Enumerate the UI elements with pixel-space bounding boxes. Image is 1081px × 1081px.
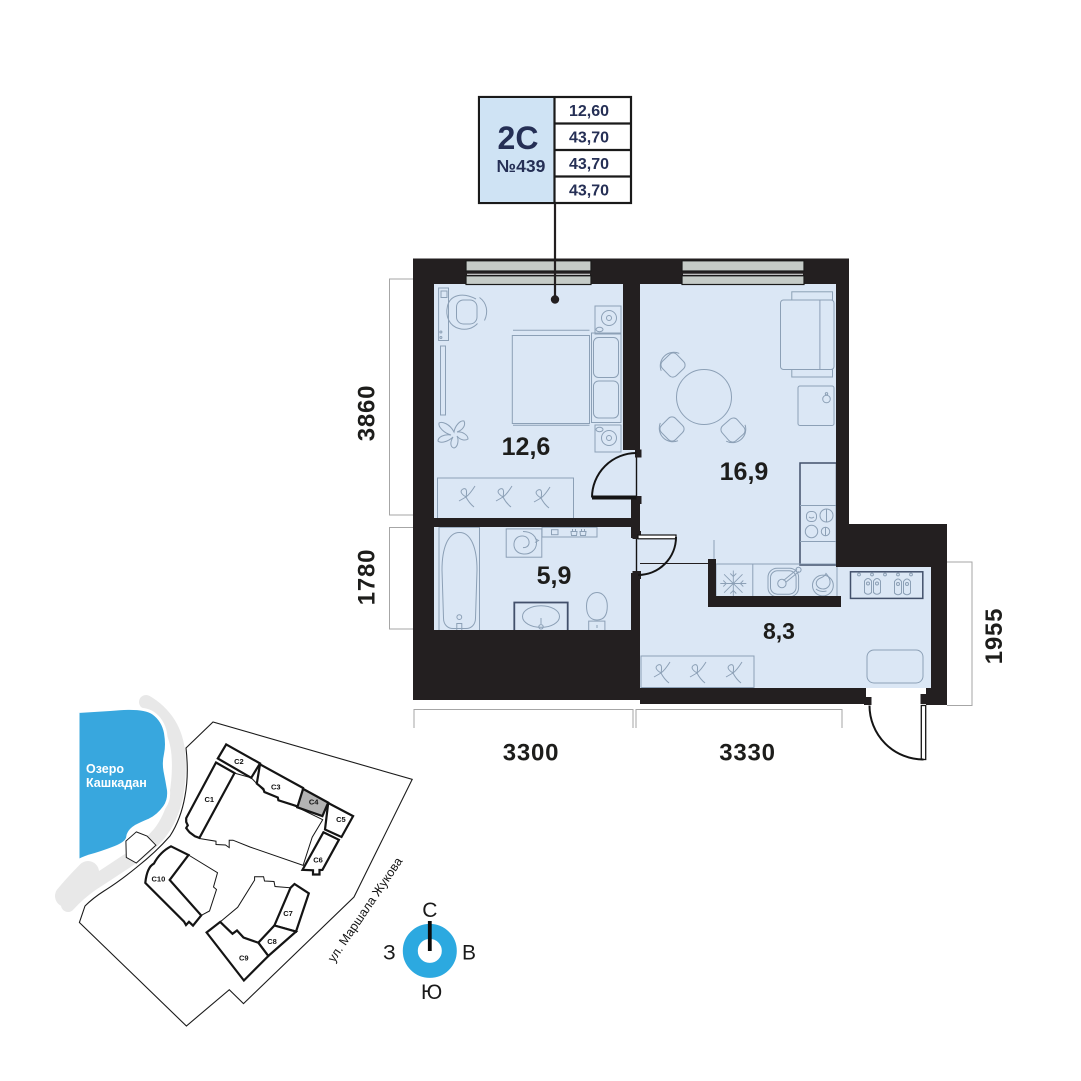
svg-text:С7: С7 — [283, 909, 293, 918]
svg-text:3330: 3330 — [719, 740, 776, 767]
svg-text:5,9: 5,9 — [537, 562, 572, 590]
svg-text:3860: 3860 — [354, 385, 381, 442]
svg-text:2С: 2С — [498, 120, 539, 156]
svg-text:С3: С3 — [271, 783, 281, 792]
svg-text:3300: 3300 — [503, 740, 560, 767]
svg-text:8,3: 8,3 — [763, 618, 795, 644]
svg-text:43,70: 43,70 — [569, 130, 609, 147]
svg-text:С6: С6 — [313, 856, 323, 865]
svg-text:С9: С9 — [239, 954, 249, 963]
svg-text:43,70: 43,70 — [569, 156, 609, 173]
svg-text:Ю: Ю — [421, 981, 442, 1004]
svg-text:12,6: 12,6 — [502, 433, 551, 461]
svg-text:Кашкадан: Кашкадан — [86, 776, 147, 790]
svg-text:1780: 1780 — [354, 549, 381, 606]
svg-text:Озеро: Озеро — [86, 762, 124, 776]
svg-text:16,9: 16,9 — [720, 458, 769, 486]
svg-text:С: С — [422, 899, 437, 922]
svg-text:С2: С2 — [234, 757, 244, 766]
svg-text:1955: 1955 — [981, 608, 1008, 665]
svg-text:С5: С5 — [336, 815, 346, 824]
svg-text:З: З — [383, 942, 396, 965]
svg-text:12,60: 12,60 — [569, 103, 609, 120]
svg-text:С8: С8 — [267, 937, 277, 946]
svg-text:43,70: 43,70 — [569, 183, 609, 200]
svg-text:В: В — [462, 942, 476, 965]
svg-text:№439: №439 — [497, 156, 546, 176]
svg-text:С10: С10 — [152, 874, 166, 883]
svg-text:С4: С4 — [309, 797, 319, 806]
svg-text:С1: С1 — [205, 795, 215, 804]
